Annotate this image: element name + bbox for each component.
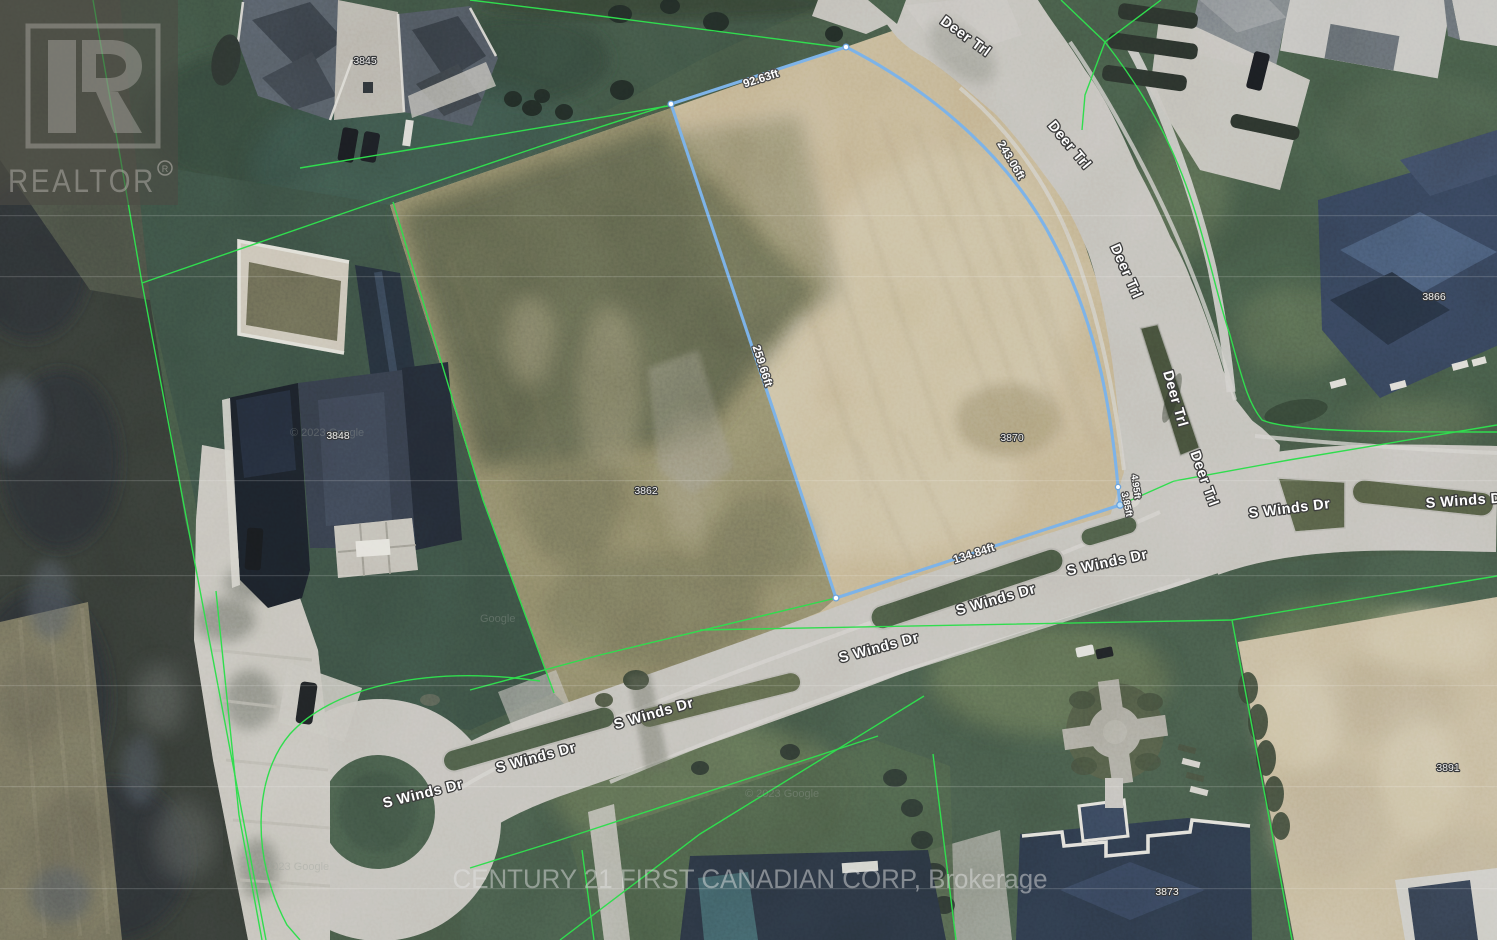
svg-text:3862: 3862 bbox=[634, 485, 658, 497]
svg-text:R: R bbox=[162, 164, 169, 174]
svg-text:© 2023 Google: © 2023 Google bbox=[255, 861, 329, 873]
svg-text:3891: 3891 bbox=[1436, 762, 1460, 774]
svg-text:3873: 3873 bbox=[1155, 886, 1179, 898]
svg-text:© 2023 Google: © 2023 Google bbox=[745, 788, 819, 800]
svg-text:REALTOR: REALTOR bbox=[8, 163, 156, 199]
svg-text:3870: 3870 bbox=[1000, 432, 1024, 444]
svg-text:CENTURY 21 FIRST CANADIAN CORP: CENTURY 21 FIRST CANADIAN CORP, Brokerag… bbox=[453, 864, 1048, 894]
svg-text:Google: Google bbox=[480, 613, 515, 625]
svg-text:3845: 3845 bbox=[353, 55, 377, 67]
svg-text:© 2023 Google: © 2023 Google bbox=[290, 427, 364, 439]
svg-text:3866: 3866 bbox=[1422, 291, 1446, 303]
